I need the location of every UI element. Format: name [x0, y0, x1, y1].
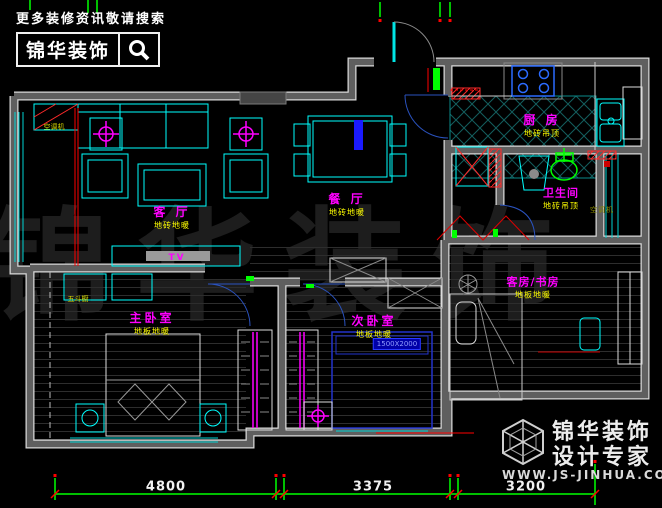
room-label-secondary: 次卧室 地板地暖: [351, 312, 396, 340]
wall-hatch-section: [588, 151, 616, 159]
drain-mark: [604, 161, 610, 167]
lamp-crosshair-icon: [93, 121, 259, 147]
footer-brand: 锦华装饰 设计专家: [552, 420, 652, 470]
footer-website: WWW.JS-JINHUA.COM: [502, 468, 662, 482]
header-logo: 更多装修资讯敬请搜索 锦华装饰: [16, 8, 166, 67]
room-label-master: 主卧室 地板地暖: [129, 309, 174, 337]
cube-logo-icon: [500, 418, 546, 466]
dining-table: [308, 116, 392, 182]
bathroom-door: [500, 205, 535, 240]
dimension-value-2: 3375: [353, 480, 393, 495]
sink-icon: [597, 99, 624, 146]
living-details: [34, 104, 259, 281]
tall-cabinet: [623, 87, 642, 139]
door-hinge-mark: [493, 229, 498, 237]
table-runner: [354, 120, 363, 150]
basin-drain: [529, 169, 539, 179]
door-hinge-mark: [246, 276, 254, 281]
room-label-kitchen: 厨 房 地砖吊顶: [523, 111, 560, 139]
tv-label: TV: [168, 253, 185, 263]
room-finish: 地砖吊顶: [543, 201, 579, 212]
room-finish: 地板地暖: [506, 290, 559, 301]
door-hinge-mark: [452, 230, 457, 238]
room-finish: 地砖地暖: [328, 207, 365, 218]
brand-box: 锦华装饰: [16, 32, 160, 67]
room-name: 卫生间: [543, 185, 579, 201]
door-hinge-mark: [433, 68, 440, 90]
room-name: 厨 房: [523, 111, 560, 128]
room-finish: 地板地暖: [129, 326, 174, 337]
ac-outdoor-label: 空调机: [44, 122, 65, 132]
dining-furniture: [294, 116, 406, 182]
kitchen-door: [405, 95, 448, 138]
armchair-left: [82, 154, 128, 198]
room-name: 餐 厅: [328, 190, 365, 207]
room-label-guest: 客房/书房 地板地暖: [506, 274, 559, 301]
column-hatch: [489, 149, 501, 187]
room-finish: 地砖地暖: [153, 220, 190, 231]
footer-logo: 锦华装饰 设计专家 WWW.JS-JINHUA.COM: [500, 418, 546, 470]
sofa: [78, 104, 208, 148]
brand-name: 锦华装饰: [18, 34, 120, 65]
room-label-dining: 餐 厅 地砖地暖: [328, 190, 365, 218]
bed-size-label: 1500X2000: [373, 338, 421, 350]
stove-icon: [512, 66, 554, 96]
door-hinge-mark: [306, 284, 314, 288]
entry-door-swing: [394, 22, 434, 62]
curtain-line: [75, 108, 78, 266]
living-furniture: [34, 104, 268, 266]
room-name: 客房/书房: [506, 274, 559, 290]
dimension-value-1: 4800: [146, 480, 186, 495]
room-name: 客 厅: [153, 203, 190, 220]
header-tagline: 更多装修资讯敬请搜索: [16, 8, 166, 27]
footer-brand-line2: 设计专家: [552, 445, 652, 470]
search-icon: [120, 34, 158, 65]
room-name: 次卧室: [351, 312, 396, 329]
floorplan-image: 锦华装饰: [0, 0, 662, 508]
guest-floor: [448, 244, 643, 392]
room-name: 主卧室: [129, 309, 174, 326]
room-label-bathroom: 卫生间 地砖吊顶: [543, 185, 579, 212]
dresser-label: 五斗橱: [68, 294, 89, 304]
room-label-living: 客 厅 地砖地暖: [153, 203, 190, 231]
secondary-floor: [286, 286, 444, 428]
wall-beam: [240, 92, 286, 104]
footer-brand-line1: 锦华装饰: [552, 420, 652, 445]
ac-platform-label: 空调机: [590, 205, 614, 215]
room-finish: 地砖吊顶: [523, 128, 560, 139]
armchair-right: [224, 154, 268, 198]
